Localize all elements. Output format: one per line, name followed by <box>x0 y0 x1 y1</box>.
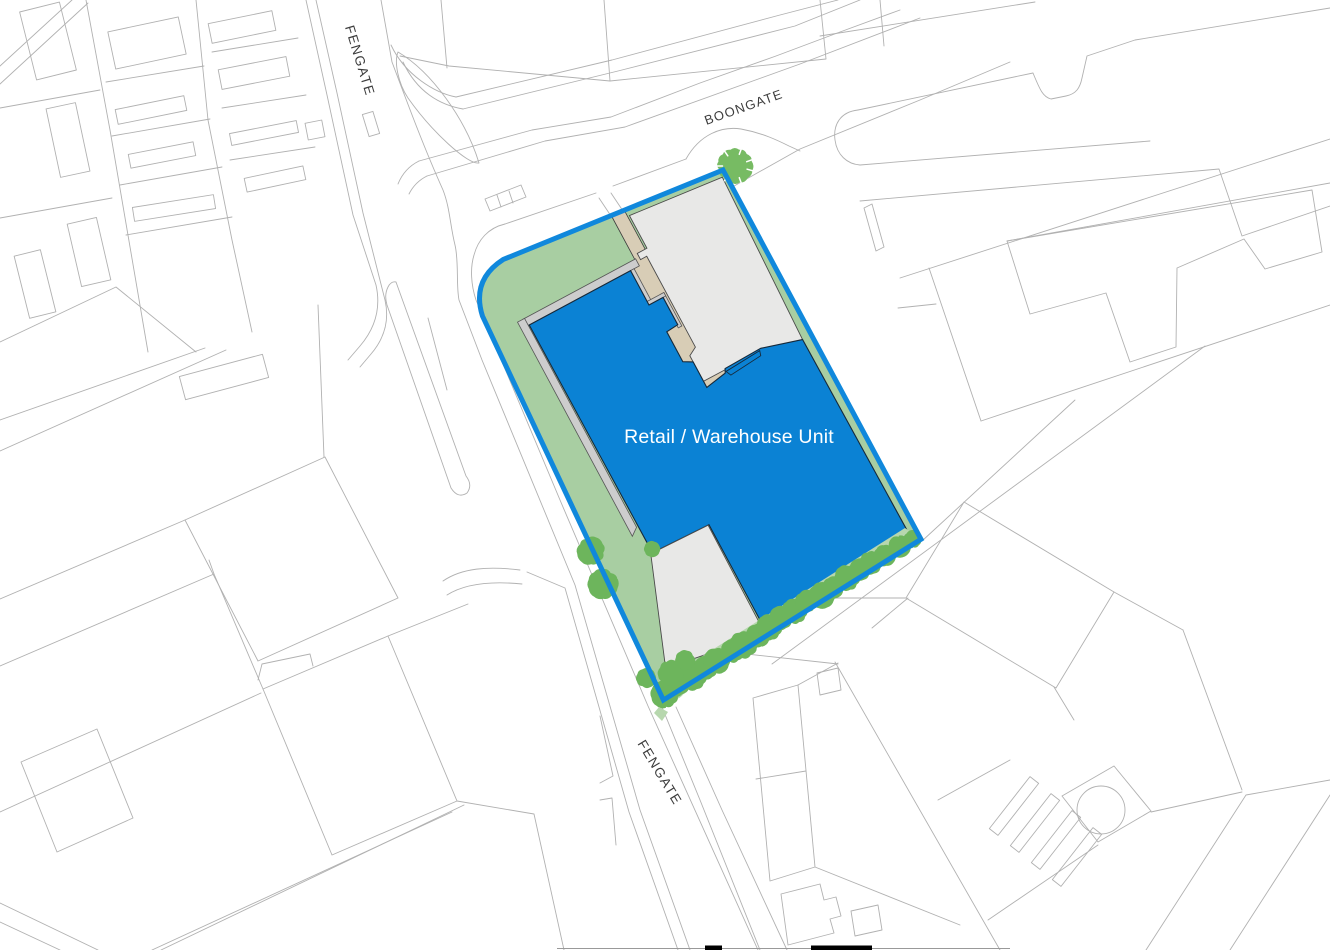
svg-text:Retail / Warehouse Unit: Retail / Warehouse Unit <box>624 426 834 448</box>
